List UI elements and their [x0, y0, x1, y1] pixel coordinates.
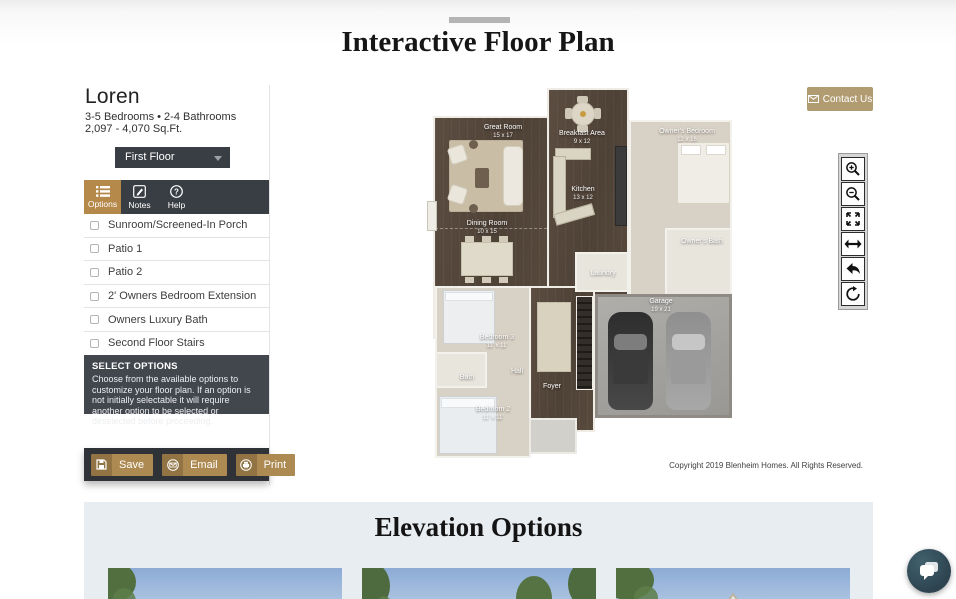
actions-bar: Save Email Print [84, 448, 269, 481]
instructions-body: Choose from the available options to cus… [92, 374, 261, 427]
kitchen-island [553, 156, 566, 218]
save-button-label: Save [112, 459, 153, 471]
zoom-in-icon [845, 161, 861, 177]
save-button[interactable]: Save [91, 454, 153, 476]
svg-text:?: ? [174, 187, 179, 196]
contact-us-label: Contact Us [823, 94, 872, 105]
coffee-table [475, 168, 489, 188]
notes-icon [133, 185, 146, 198]
floor-select-dropdown[interactable]: First Floor [115, 147, 230, 168]
checkbox-patio1[interactable] [90, 244, 99, 253]
chair [499, 277, 508, 283]
rotate-icon [845, 286, 861, 302]
envelope-icon [808, 95, 819, 103]
chat-bubbles-icon [918, 561, 940, 581]
checkbox-second-floor-stairs[interactable] [90, 339, 99, 348]
copyright-text: Copyright 2019 Blenheim Homes. All Right… [669, 461, 863, 470]
kitchen-counter-appliances [615, 146, 627, 226]
dining-table [461, 242, 513, 276]
tab-options[interactable]: Options [84, 180, 121, 214]
fit-width-icon [844, 238, 862, 250]
tab-help-label: Help [168, 200, 185, 210]
option-label: 2' Owners Bedroom Extension [108, 290, 256, 302]
help-icon: ? [170, 185, 183, 198]
room-label-breakfast-area: Breakfast Area9 x 12 [559, 130, 605, 146]
room-label-garage: Garage19 x 21 [649, 298, 672, 314]
room-label-hall: Hall [511, 368, 523, 376]
option-row-patio1[interactable]: Patio 1 [84, 238, 269, 262]
car-light [666, 312, 711, 410]
elevation-options-section: Elevation Options [84, 502, 873, 599]
zoom-in-button[interactable] [841, 157, 865, 181]
pillow [706, 145, 726, 155]
plan-specs-bedrooms: 3-5 Bedrooms • 2-4 Bathrooms [85, 111, 236, 123]
sofa [503, 146, 523, 206]
room-label-owners-bedroom: Owner's Bedroom12 x 16 [659, 128, 715, 144]
elevation-image-1[interactable] [108, 568, 342, 599]
email-button-label: Email [183, 459, 227, 471]
live-chat-button[interactable] [907, 549, 951, 593]
instructions-heading: SELECT OPTIONS [92, 361, 261, 372]
viewer-toolbar [838, 153, 868, 310]
room-label-dining-room: Dining Room10 x 15 [467, 220, 507, 236]
chair [499, 236, 508, 242]
checkbox-luxury-bath[interactable] [90, 315, 99, 324]
sidebar-tabs: Options Notes ? Help [84, 180, 269, 214]
pillow [681, 145, 701, 155]
room-label-foyer: Foyer [543, 383, 561, 391]
tab-notes[interactable]: Notes [121, 180, 158, 214]
option-label: Patio 1 [108, 243, 142, 255]
print-button[interactable]: Print [236, 454, 296, 476]
fullscreen-icon [845, 211, 861, 227]
room-bath2 [435, 352, 487, 388]
chair [465, 236, 474, 242]
room-label-bedroom2: Bedroom 211' x 11' [476, 406, 510, 422]
elevation-image-3[interactable] [616, 568, 850, 599]
page: Interactive Floor Plan Loren 3-5 Bedroom… [0, 0, 956, 599]
options-list: Sunroom/Screened-In Porch Patio 1 Patio … [84, 214, 269, 356]
fit-width-button[interactable] [841, 232, 865, 256]
side-table [469, 204, 478, 213]
chevron-down-icon [214, 156, 222, 161]
side-table [469, 140, 478, 149]
email-icon [162, 454, 183, 476]
fullscreen-button[interactable] [841, 207, 865, 231]
car-dark [608, 312, 653, 410]
chair [482, 236, 491, 242]
save-icon [91, 454, 112, 476]
option-row-luxury-bath[interactable]: Owners Luxury Bath [84, 308, 269, 332]
print-button-label: Print [257, 459, 296, 471]
section-divider-bar [449, 17, 510, 23]
room-label-bedroom3: Bedroom 311' x 11' [480, 334, 514, 350]
zoom-out-icon [845, 186, 861, 202]
chair [565, 108, 572, 119]
tab-notes-label: Notes [128, 200, 150, 210]
chair [594, 108, 601, 119]
entry-porch [529, 418, 577, 454]
elevation-image-2[interactable] [362, 568, 596, 599]
option-label: Sunroom/Screened-In Porch [108, 219, 247, 231]
chair [465, 277, 474, 283]
rotate-button[interactable] [841, 282, 865, 306]
page-title: Interactive Floor Plan [0, 26, 956, 59]
plan-name: Loren [85, 85, 140, 109]
select-options-instructions: SELECT OPTIONS Choose from the available… [84, 355, 269, 414]
option-row-sunroom[interactable]: Sunroom/Screened-In Porch [84, 214, 269, 238]
chair [577, 96, 588, 103]
room-label-kitchen: Kitchen13 x 12 [571, 186, 594, 202]
zoom-out-button[interactable] [841, 182, 865, 206]
undo-icon [845, 262, 861, 276]
print-icon [236, 454, 257, 476]
checkbox-patio2[interactable] [90, 268, 99, 277]
tab-help[interactable]: ? Help [158, 180, 195, 214]
checkbox-owners-extension[interactable] [90, 292, 99, 301]
option-label: Patio 2 [108, 266, 142, 278]
option-row-second-floor-stairs[interactable]: Second Floor Stairs [84, 332, 269, 356]
plan-specs-sqft: 2,097 - 4,070 Sq.Ft. [85, 123, 182, 135]
room-label-great-room: Great Room15 x 17 [484, 124, 522, 140]
option-row-owners-extension[interactable]: 2' Owners Bedroom Extension [84, 285, 269, 309]
list-icon [96, 186, 110, 197]
option-label: Owners Luxury Bath [108, 314, 208, 326]
fireplace [427, 201, 437, 231]
room-label-laundry: Laundry [590, 270, 615, 278]
table-centerpiece [580, 111, 586, 117]
undo-button[interactable] [841, 257, 865, 281]
option-row-patio2[interactable]: Patio 2 [84, 261, 269, 285]
foyer-rug [537, 302, 571, 372]
elevation-options-title: Elevation Options [84, 512, 873, 543]
floor-select-value: First Floor [125, 151, 175, 163]
tab-options-label: Options [88, 199, 117, 209]
room-label-bath: Bath [460, 374, 474, 382]
floorplan-options-sidebar: Loren 3-5 Bedrooms • 2-4 Bathrooms 2,097… [84, 85, 270, 485]
room-label-owners-bath: Owner's Bath [681, 238, 723, 246]
chair [482, 277, 491, 283]
staircase [576, 296, 593, 390]
contact-us-button[interactable]: Contact Us [807, 87, 873, 111]
option-label: Second Floor Stairs [108, 337, 205, 349]
checkbox-sunroom[interactable] [90, 221, 99, 230]
floorplan-canvas[interactable]: Great Room15 x 17 Breakfast Area9 x 12 O… [425, 86, 735, 466]
pillow [445, 292, 493, 301]
email-button[interactable]: Email [162, 454, 227, 476]
